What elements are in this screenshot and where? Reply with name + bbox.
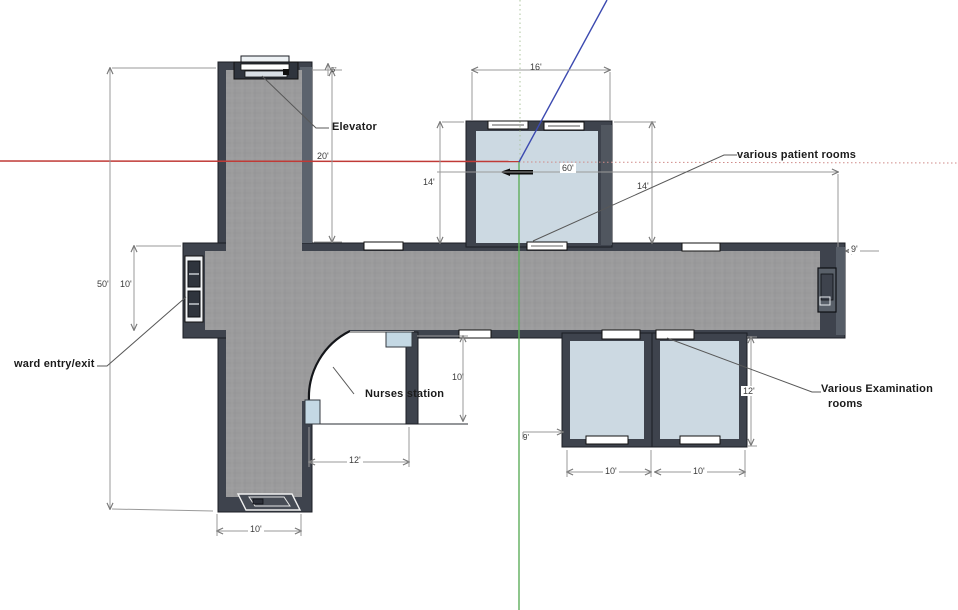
dim-nurses-width: 12' xyxy=(347,455,363,465)
nurses-station-label: Nurses station xyxy=(365,388,444,400)
floor-plan-drawing xyxy=(0,0,958,610)
elevator-label: Elevator xyxy=(332,121,377,133)
dim-exam-room2-width: 10' xyxy=(691,466,707,476)
ward-entry-door[interactable] xyxy=(185,256,203,322)
exam-room-2-floor[interactable] xyxy=(660,341,739,439)
patient-rooms-label: various patient rooms xyxy=(737,149,856,161)
exam-room-2[interactable] xyxy=(652,330,747,447)
south-exit-door[interactable] xyxy=(238,494,300,510)
exam-room-1-floor[interactable] xyxy=(570,341,644,439)
wall-highlight xyxy=(601,125,612,245)
corridor-north-door-2[interactable] xyxy=(682,243,720,251)
nurses-counter-top[interactable] xyxy=(386,332,412,347)
corridor-south-door[interactable] xyxy=(459,330,491,338)
dim-elevator-top: 5' xyxy=(331,65,337,75)
dim-corridor-length: 60' xyxy=(560,163,576,173)
corridor-north-door-1[interactable] xyxy=(364,242,403,250)
dim-leg-width: 10' xyxy=(248,524,264,534)
dim-exam-room-depth: 12' xyxy=(741,386,757,396)
exam-room-2-door[interactable] xyxy=(656,330,694,339)
exam-rooms-label: Various Examination xyxy=(821,383,933,395)
dim-exam-offset: 9' xyxy=(523,433,529,443)
patient-room[interactable] xyxy=(466,121,612,250)
dim-corridor-width: 10' xyxy=(120,279,132,289)
exam-room-1-window xyxy=(586,436,628,444)
dim-overall-height: 50' xyxy=(97,279,109,289)
wall-highlight xyxy=(836,247,845,335)
dim-patient-width: 16' xyxy=(530,62,542,72)
corridor-east-door[interactable] xyxy=(818,268,836,312)
x-axis-positive xyxy=(0,161,519,162)
dim-nurses-depth: 10' xyxy=(452,372,464,382)
dim-patient-depth-r: 14' xyxy=(637,181,649,191)
corridor-floor[interactable] xyxy=(205,251,820,330)
nurses-counter-side[interactable] xyxy=(305,400,320,424)
exam-room-1[interactable] xyxy=(562,330,652,447)
model-viewport[interactable]: Elevator various patient rooms Various E… xyxy=(0,0,958,610)
patient-room-floor[interactable] xyxy=(476,131,598,243)
nurses-station-area[interactable] xyxy=(305,331,468,424)
south-leg-floor[interactable] xyxy=(226,330,302,497)
elevator-door[interactable] xyxy=(234,56,298,79)
dim-corridor-end: 9' xyxy=(849,244,860,254)
dim-exam-room1-width: 10' xyxy=(603,466,619,476)
exam-room-1-door[interactable] xyxy=(602,330,640,339)
exam-rooms-label-2: rooms xyxy=(828,398,863,410)
dim-elevator-wing: 20' xyxy=(317,151,329,161)
dim-patient-depth-l: 14' xyxy=(423,177,435,187)
ward-entry-label: ward entry/exit xyxy=(14,358,95,370)
exam-room-2-window xyxy=(680,436,720,444)
